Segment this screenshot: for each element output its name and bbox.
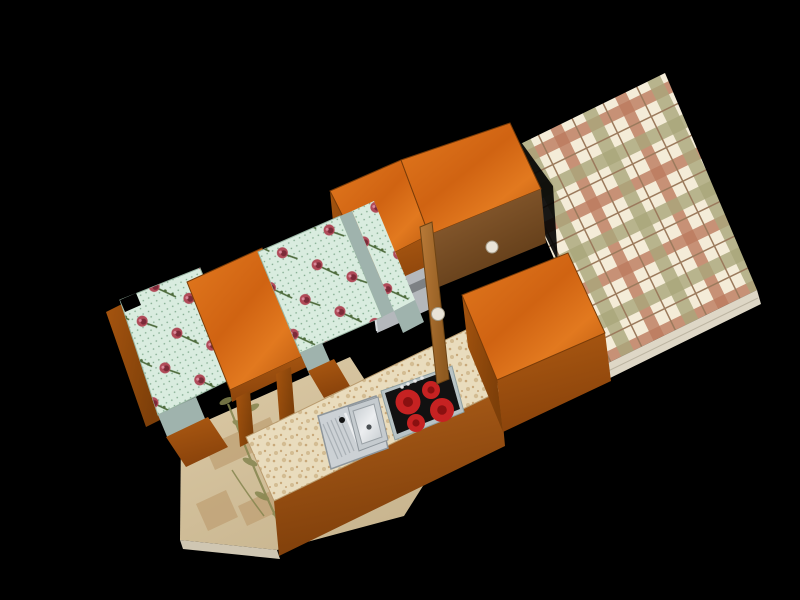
render-viewport: [0, 0, 800, 600]
control-dot: [406, 382, 410, 386]
burner-core: [437, 405, 447, 415]
burner-core: [403, 397, 413, 407]
cabinet-knob: [486, 241, 498, 253]
faucet-hole: [339, 417, 345, 423]
sink-drain: [366, 424, 371, 429]
control-dot: [420, 376, 424, 380]
door-knob: [432, 308, 445, 321]
kitchen-3d-render: [0, 0, 800, 600]
control-dot: [400, 385, 404, 389]
burner-core: [427, 386, 434, 393]
burner-core: [412, 419, 419, 426]
control-dot: [413, 379, 417, 383]
